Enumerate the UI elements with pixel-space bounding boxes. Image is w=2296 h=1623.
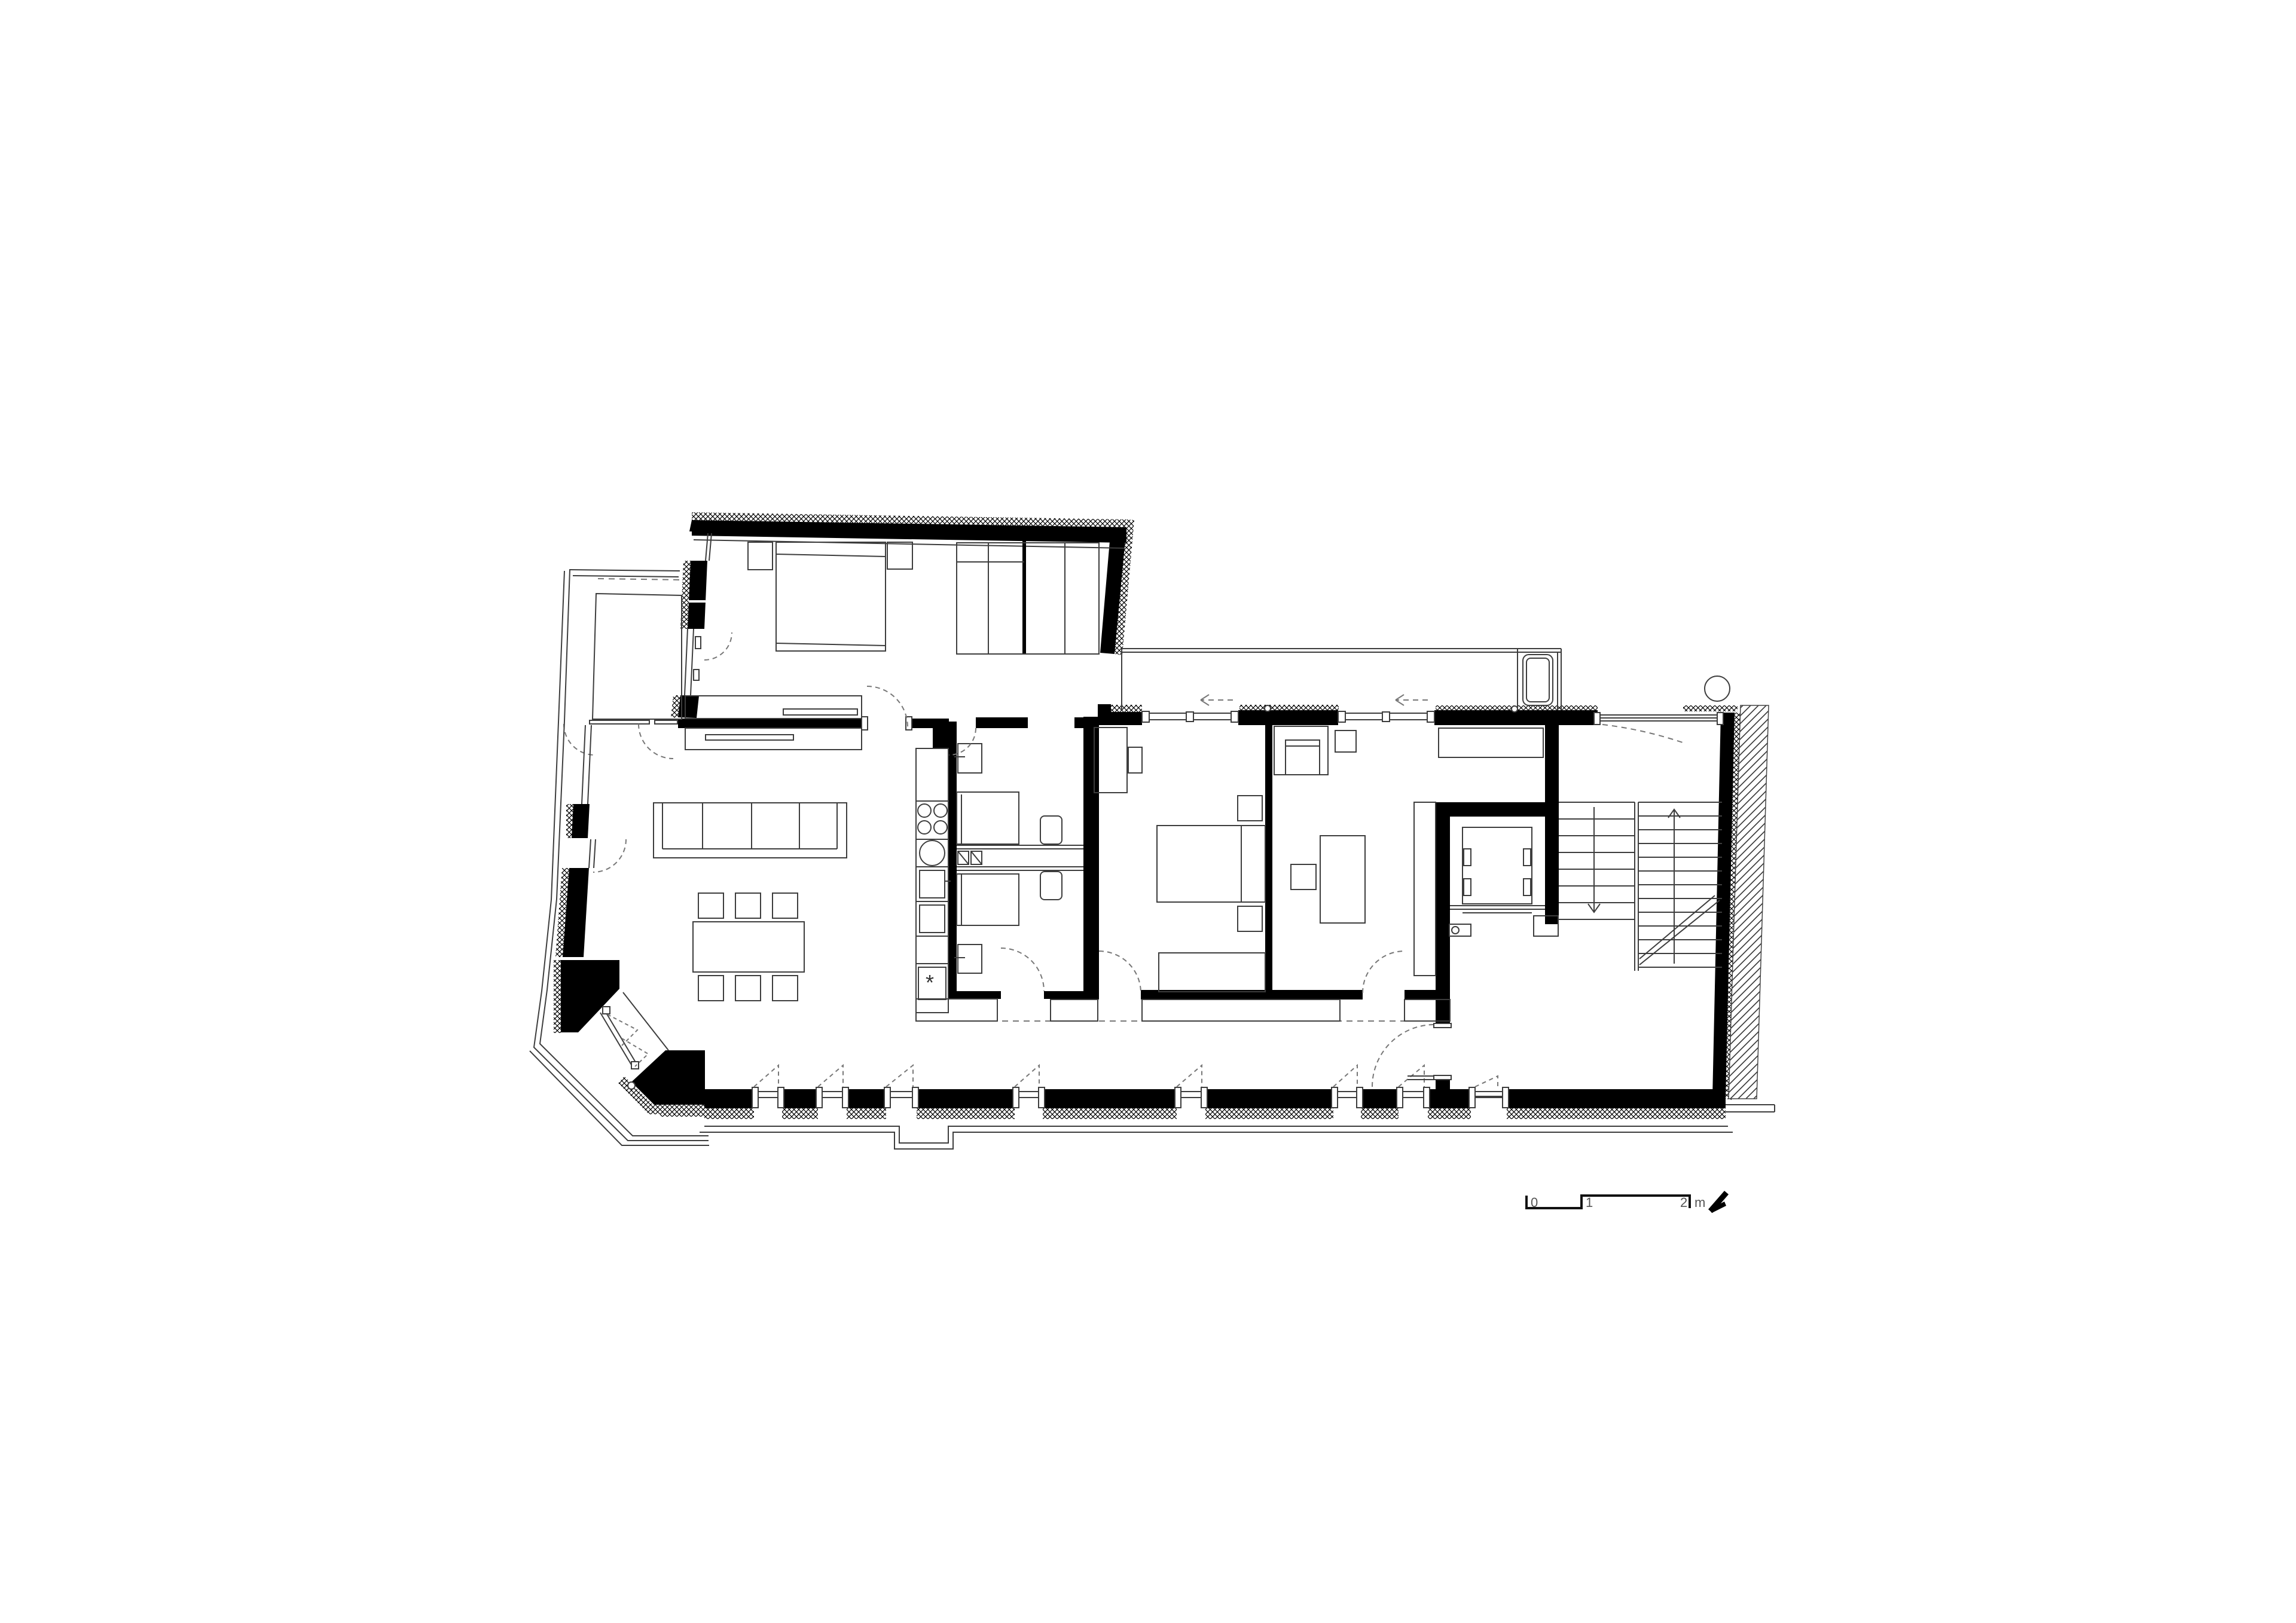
svg-text:m: m: [1694, 1195, 1705, 1210]
svg-text:1: 1: [1586, 1195, 1593, 1210]
svg-text:0: 0: [1531, 1195, 1538, 1210]
svg-text:*: *: [926, 970, 934, 995]
svg-text:2: 2: [1680, 1195, 1687, 1210]
